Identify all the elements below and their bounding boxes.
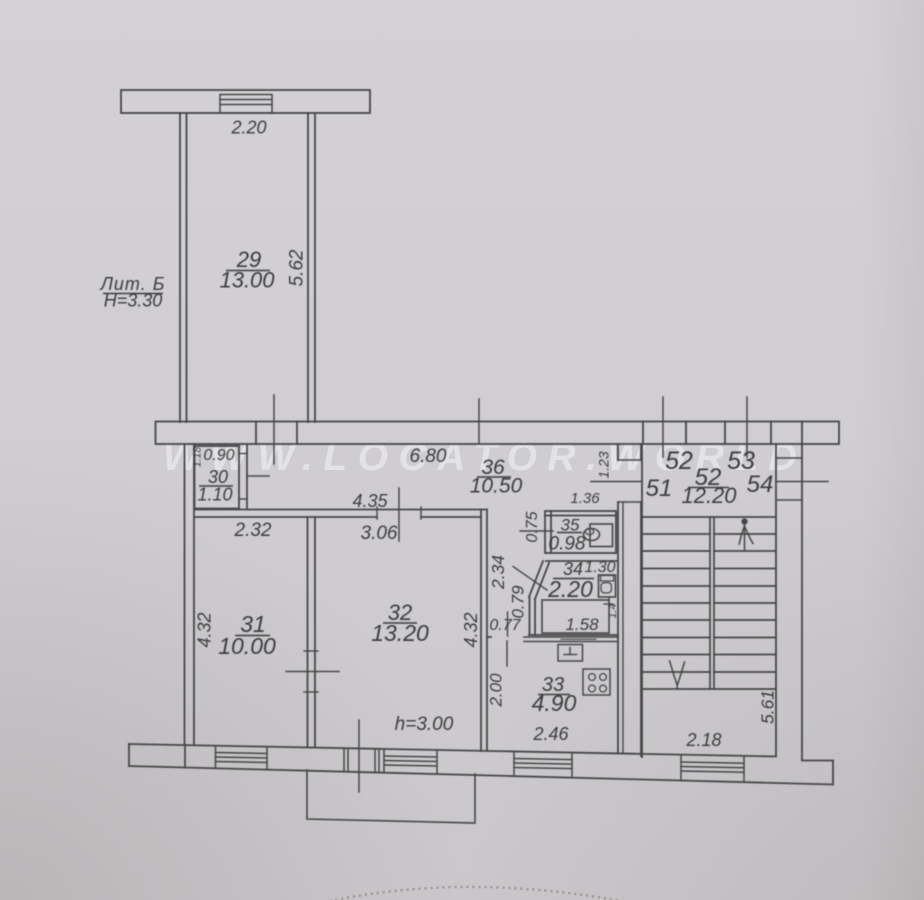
svg-text:35: 35 (561, 516, 580, 535)
svg-text:3.06: 3.06 (361, 523, 398, 544)
svg-text:1.30: 1.30 (584, 559, 615, 576)
svg-text:0.77: 0.77 (489, 617, 521, 634)
svg-text:0.98: 0.98 (549, 534, 586, 555)
svg-text:5.61: 5.61 (758, 690, 778, 724)
svg-text:1.23: 1.23 (596, 451, 612, 478)
svg-text:5.62: 5.62 (286, 249, 307, 286)
svg-text:4.32: 4.32 (195, 612, 215, 647)
svg-text:12.20: 12.20 (681, 483, 737, 508)
svg-text:10.00: 10.00 (218, 633, 276, 659)
svg-text:0.90: 0.90 (203, 447, 234, 464)
svg-text:1.10: 1.10 (197, 485, 232, 505)
svg-text:13.00: 13.00 (219, 268, 275, 293)
svg-text:0.75: 0.75 (524, 511, 541, 542)
svg-text:10.50: 10.50 (470, 475, 523, 498)
svg-text:1.18: 1.18 (192, 447, 204, 468)
svg-text:4.90: 4.90 (532, 690, 577, 716)
svg-text:6.80: 6.80 (410, 446, 447, 467)
svg-text:2.32: 2.32 (234, 520, 272, 541)
svg-text:2.20: 2.20 (230, 118, 266, 138)
svg-text:2.00: 2.00 (487, 673, 506, 708)
svg-text:2.46: 2.46 (532, 724, 569, 744)
svg-text:2.20: 2.20 (547, 576, 593, 602)
svg-text:4.32: 4.32 (461, 612, 481, 647)
svg-text:1.58: 1.58 (565, 615, 599, 634)
svg-text:2.34: 2.34 (488, 555, 508, 590)
svg-text:13.20: 13.20 (371, 620, 429, 646)
svg-text:0.79: 0.79 (508, 585, 527, 619)
svg-text:2.18: 2.18 (685, 730, 721, 750)
svg-text:Н=3.30: Н=3.30 (104, 291, 163, 311)
svg-text:h=3.00: h=3.00 (395, 714, 454, 735)
svg-text:1.36: 1.36 (570, 490, 600, 507)
svg-text:4.35: 4.35 (352, 491, 388, 511)
svg-text:51: 51 (646, 475, 673, 502)
svg-text:54: 54 (747, 471, 774, 498)
svg-text:52: 52 (665, 447, 693, 475)
